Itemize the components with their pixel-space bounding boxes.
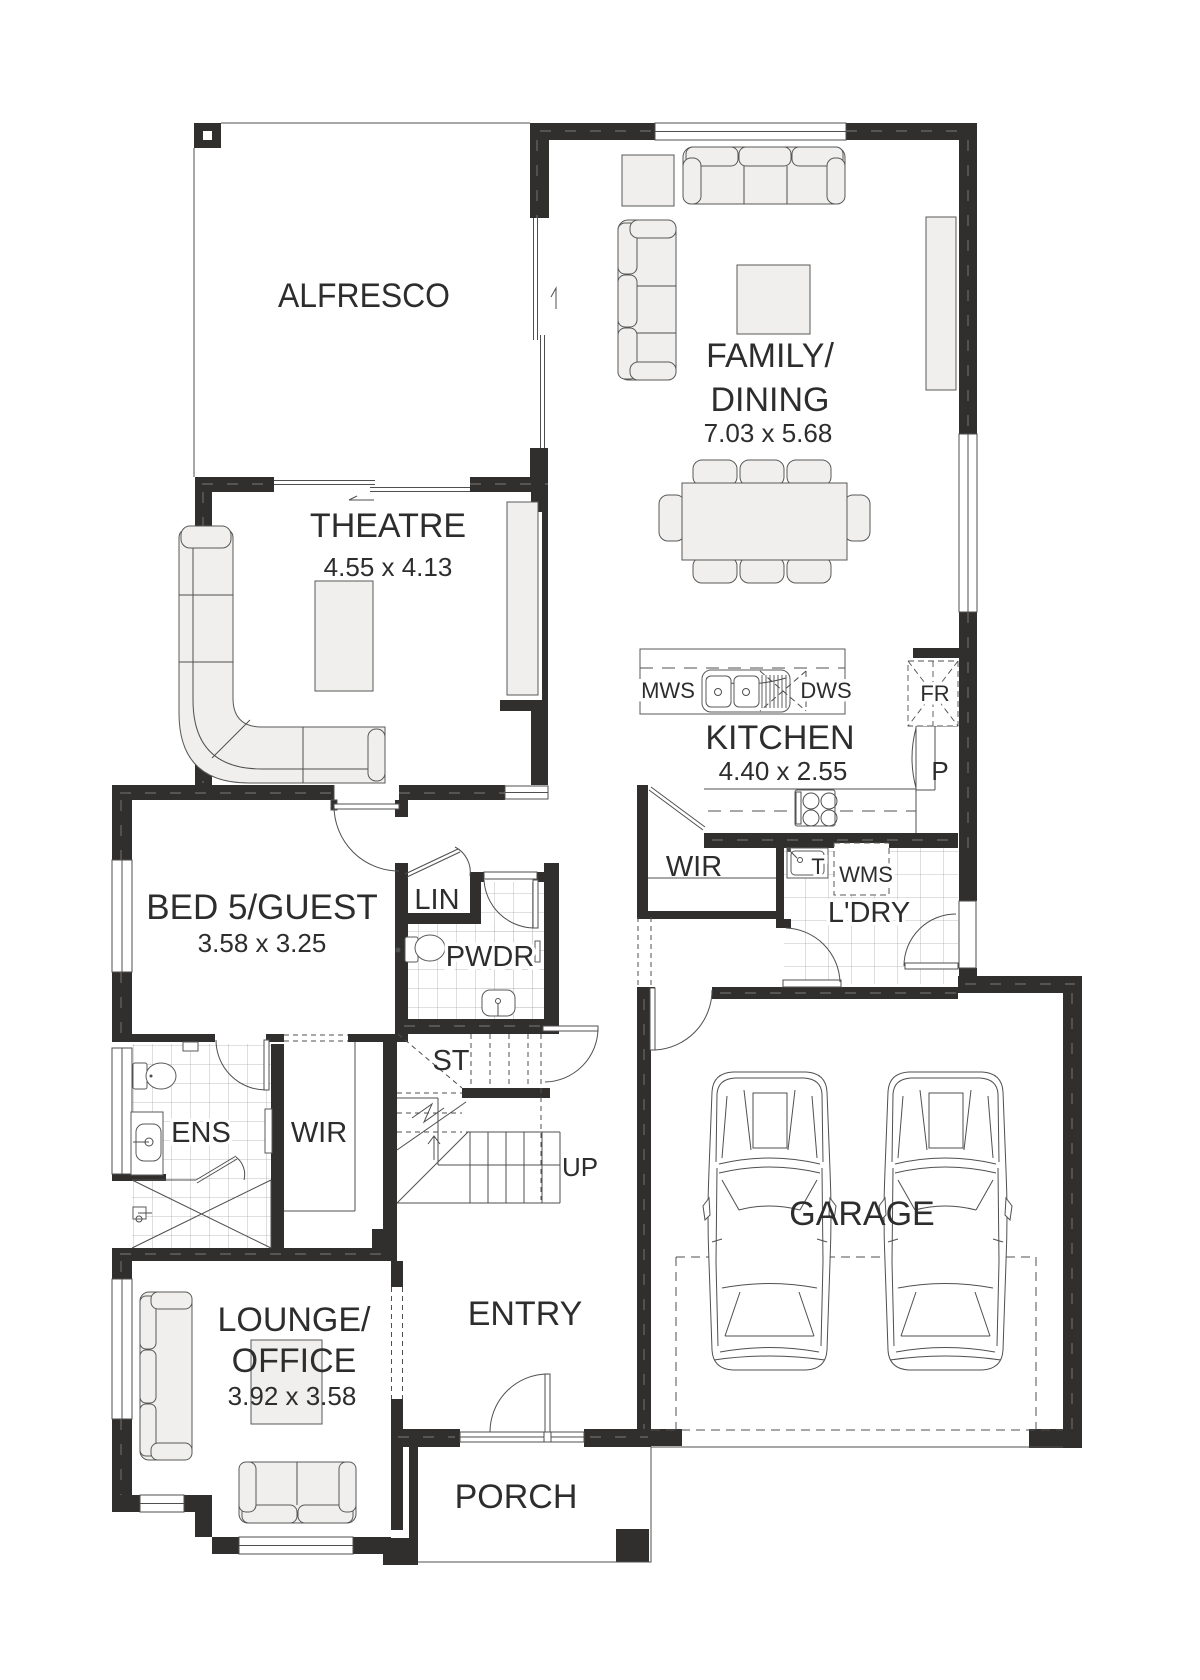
svg-text:FAMILY/: FAMILY/ xyxy=(706,337,834,375)
svg-text:UP: UP xyxy=(562,1152,598,1182)
svg-text:T: T xyxy=(811,854,824,879)
svg-text:WIR: WIR xyxy=(666,851,722,883)
svg-text:PWDR: PWDR xyxy=(446,941,535,973)
svg-text:ENS: ENS xyxy=(171,1117,231,1149)
svg-text:ST: ST xyxy=(432,1045,469,1077)
svg-text:LOUNGE/: LOUNGE/ xyxy=(217,1301,371,1339)
svg-text:OFFICE: OFFICE xyxy=(232,1342,357,1380)
svg-text:4.40 x 2.55: 4.40 x 2.55 xyxy=(719,756,848,786)
svg-text:GARAGE: GARAGE xyxy=(789,1195,934,1233)
svg-text:LIN: LIN xyxy=(414,884,459,916)
svg-text:ENTRY: ENTRY xyxy=(468,1295,583,1333)
svg-text:L'DRY: L'DRY xyxy=(828,897,910,929)
svg-text:KITCHEN: KITCHEN xyxy=(705,719,854,757)
svg-text:P: P xyxy=(931,756,948,786)
svg-text:3.58 x 3.25: 3.58 x 3.25 xyxy=(198,928,327,958)
svg-text:ALFRESCO: ALFRESCO xyxy=(278,277,450,315)
svg-text:4.55 x 4.13: 4.55 x 4.13 xyxy=(324,552,453,582)
svg-text:THEATRE: THEATRE xyxy=(310,507,466,545)
svg-text:7.03 x 5.68: 7.03 x 5.68 xyxy=(704,418,833,448)
svg-text:WIR: WIR xyxy=(291,1117,347,1149)
svg-text:3.92 x 3.58: 3.92 x 3.58 xyxy=(228,1381,357,1411)
svg-text:WMS: WMS xyxy=(839,862,893,887)
svg-text:DWS: DWS xyxy=(800,678,851,703)
svg-text:DINING: DINING xyxy=(711,381,830,419)
svg-text:PORCH: PORCH xyxy=(455,1478,578,1516)
svg-text:FR: FR xyxy=(920,681,949,706)
svg-text:BED 5/GUEST: BED 5/GUEST xyxy=(146,888,377,927)
svg-text:MWS: MWS xyxy=(641,678,695,703)
